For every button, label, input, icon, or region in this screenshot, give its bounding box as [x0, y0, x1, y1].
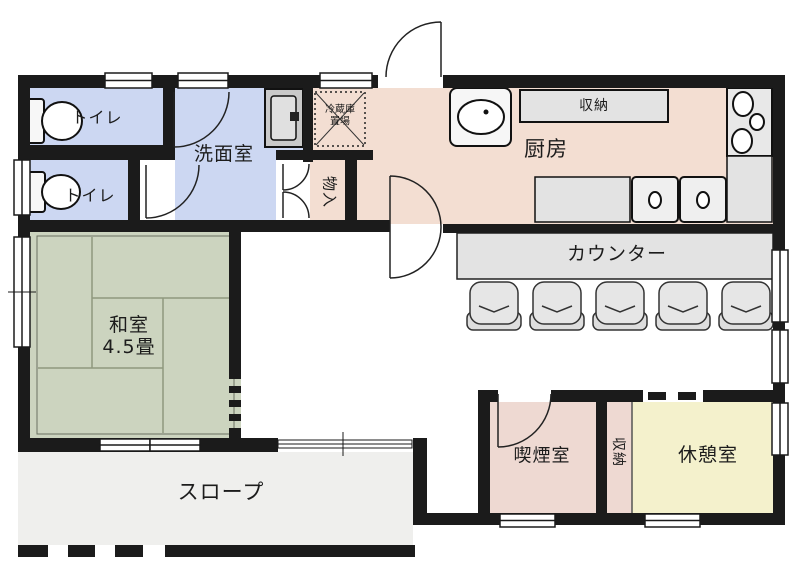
wall-dash — [115, 545, 143, 557]
vanity-sink-icon — [265, 89, 303, 147]
wall-segment — [443, 75, 785, 88]
wall-segment — [478, 390, 490, 513]
wall-segment — [165, 545, 415, 557]
wall-segment — [413, 438, 427, 525]
kitchen-sink-unit — [632, 177, 678, 222]
wall-segment — [443, 224, 773, 233]
entrance-door-swing — [386, 22, 441, 77]
counter-stool — [467, 282, 521, 330]
sliding-door-dash — [229, 386, 241, 393]
wall-segment — [345, 160, 357, 222]
closet-hall-label: 物入 — [320, 176, 337, 208]
kitchen-sink-unit — [680, 177, 726, 222]
washroom-label: 洗面室 — [194, 144, 254, 166]
floor-plan-drawing — [0, 0, 800, 573]
wall-segment — [18, 145, 175, 160]
washitsu-label-line1: 和室 — [109, 314, 149, 336]
kitchen-sink-icon — [450, 88, 511, 146]
kitchen-storage-label: 収納 — [579, 98, 609, 114]
kitchen-counter-right — [727, 156, 772, 222]
closet-door-alcove — [276, 160, 303, 222]
rest-room-label: 休憩室 — [678, 445, 738, 467]
washitsu-label: 和室 4.5畳 — [102, 315, 155, 359]
sliding-door-dash — [229, 414, 241, 421]
wall-segment — [478, 390, 498, 402]
smoking-room-label: 喫煙室 — [514, 447, 571, 468]
counter-stool — [656, 282, 710, 330]
kitchen-counter-bottom — [535, 177, 630, 222]
kitchen-label: 厨房 — [524, 137, 568, 161]
counter-stool — [719, 282, 773, 330]
wall-segment — [128, 160, 140, 220]
slope-label: スロープ — [178, 480, 265, 504]
sliding-door-dash — [229, 400, 241, 407]
counter-stool — [593, 282, 647, 330]
wall-segment — [276, 150, 373, 160]
opening-dash — [678, 392, 696, 400]
wall-dash — [68, 545, 95, 557]
fridge-label-line2: 置場 — [330, 116, 350, 127]
closet-south-label: 収納 — [610, 437, 626, 467]
wall-dash — [18, 545, 48, 557]
counter-stool — [530, 282, 584, 330]
floor-plan: トイレ トイレ 洗面室 物入 冷蔵庫 置場 厨房 収納 カウンター 和室 4.5… — [0, 0, 800, 573]
wall-segment — [229, 230, 241, 372]
washitsu-label-line2: 4.5畳 — [102, 336, 155, 358]
wall-segment — [413, 513, 785, 525]
fridge-space-label: 冷蔵庫 置場 — [325, 105, 355, 128]
wall-segment — [703, 390, 773, 402]
opening-dash — [648, 392, 666, 400]
wall-segment — [163, 88, 175, 147]
wall-segment — [596, 390, 607, 513]
counter-label: カウンター — [567, 244, 667, 266]
wall-segment — [18, 220, 390, 232]
fridge-label-line1: 冷蔵庫 — [325, 105, 355, 116]
stove-icon — [727, 88, 772, 156]
toilet1-label: トイレ — [71, 109, 122, 127]
sliding-door-dash — [229, 372, 241, 379]
toilet2-label: トイレ — [64, 187, 115, 205]
wall-segment — [229, 428, 241, 440]
